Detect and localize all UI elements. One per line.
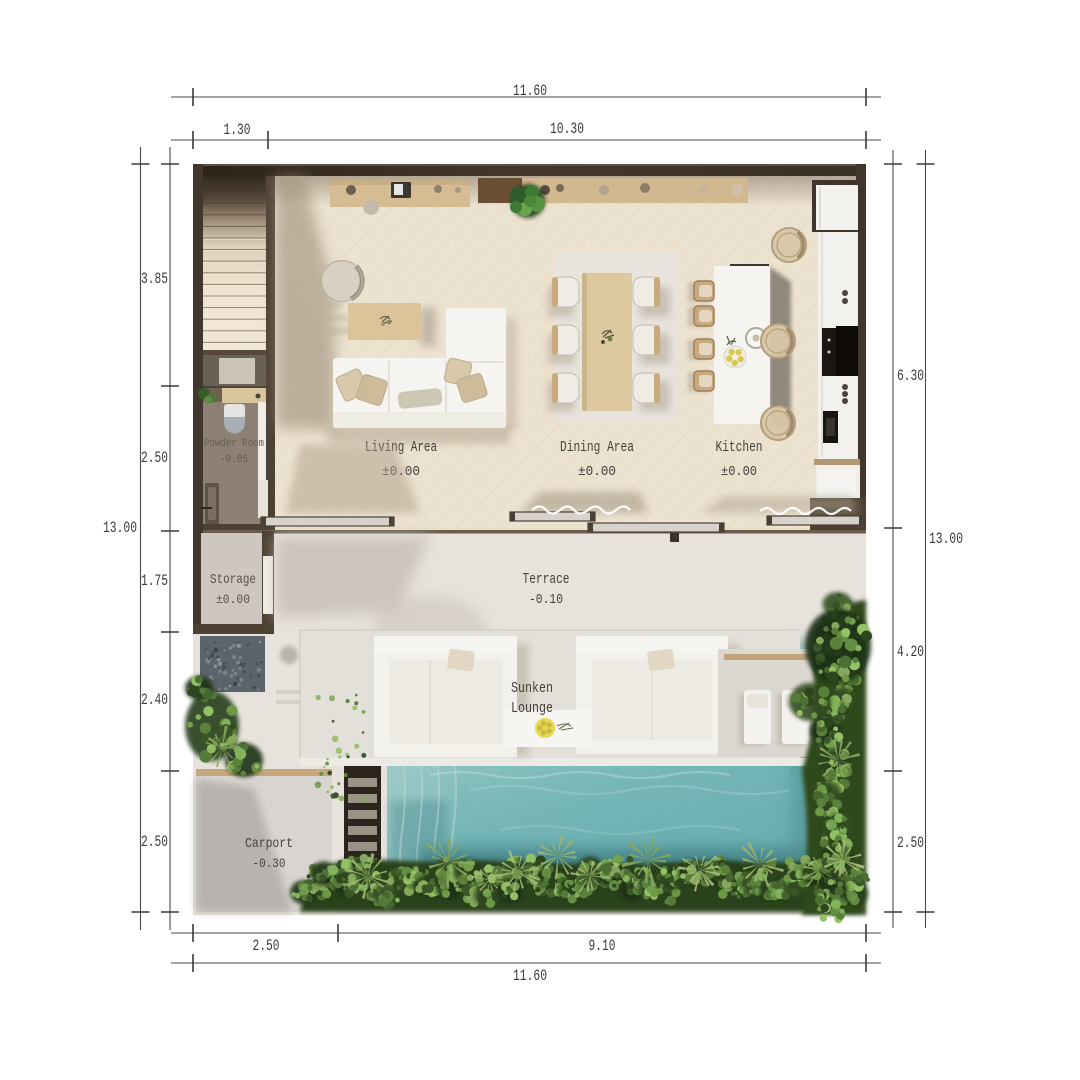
svg-text:2.40: 2.40 — [141, 691, 168, 709]
svg-text:Terrace: Terrace — [523, 571, 570, 588]
svg-text:-0.05: -0.05 — [220, 454, 248, 466]
svg-text:Kitchen: Kitchen — [716, 439, 763, 456]
svg-text:2.50: 2.50 — [141, 449, 168, 467]
svg-text:Storage: Storage — [210, 572, 256, 588]
svg-text:4.20: 4.20 — [897, 643, 924, 661]
svg-text:10.30: 10.30 — [550, 120, 584, 138]
svg-text:11.60: 11.60 — [513, 967, 547, 985]
svg-text:2.50: 2.50 — [897, 834, 924, 852]
svg-text:2.50: 2.50 — [253, 937, 280, 955]
svg-text:1.30: 1.30 — [224, 121, 251, 139]
svg-text:Lounge: Lounge — [511, 700, 553, 717]
svg-text:13.00: 13.00 — [929, 530, 963, 548]
svg-text:Carport: Carport — [245, 836, 293, 852]
svg-text:1.75: 1.75 — [141, 572, 168, 590]
svg-text:13.00: 13.00 — [103, 519, 137, 537]
svg-text:9.10: 9.10 — [589, 937, 616, 955]
svg-text:-0.10: -0.10 — [529, 592, 563, 608]
svg-text:11.60: 11.60 — [513, 82, 547, 100]
svg-text:±0.00: ±0.00 — [216, 592, 250, 607]
svg-text:Sunken: Sunken — [511, 680, 553, 697]
svg-text:±0.00: ±0.00 — [578, 464, 616, 480]
svg-text:6.30: 6.30 — [897, 367, 924, 385]
svg-text:Dining Area: Dining Area — [560, 439, 634, 456]
svg-text:-0.30: -0.30 — [253, 856, 286, 871]
svg-text:±0.00: ±0.00 — [721, 464, 757, 480]
svg-text:2.50: 2.50 — [141, 833, 168, 851]
svg-text:Powder Room: Powder Room — [204, 438, 264, 450]
svg-text:3.85: 3.85 — [141, 270, 168, 288]
